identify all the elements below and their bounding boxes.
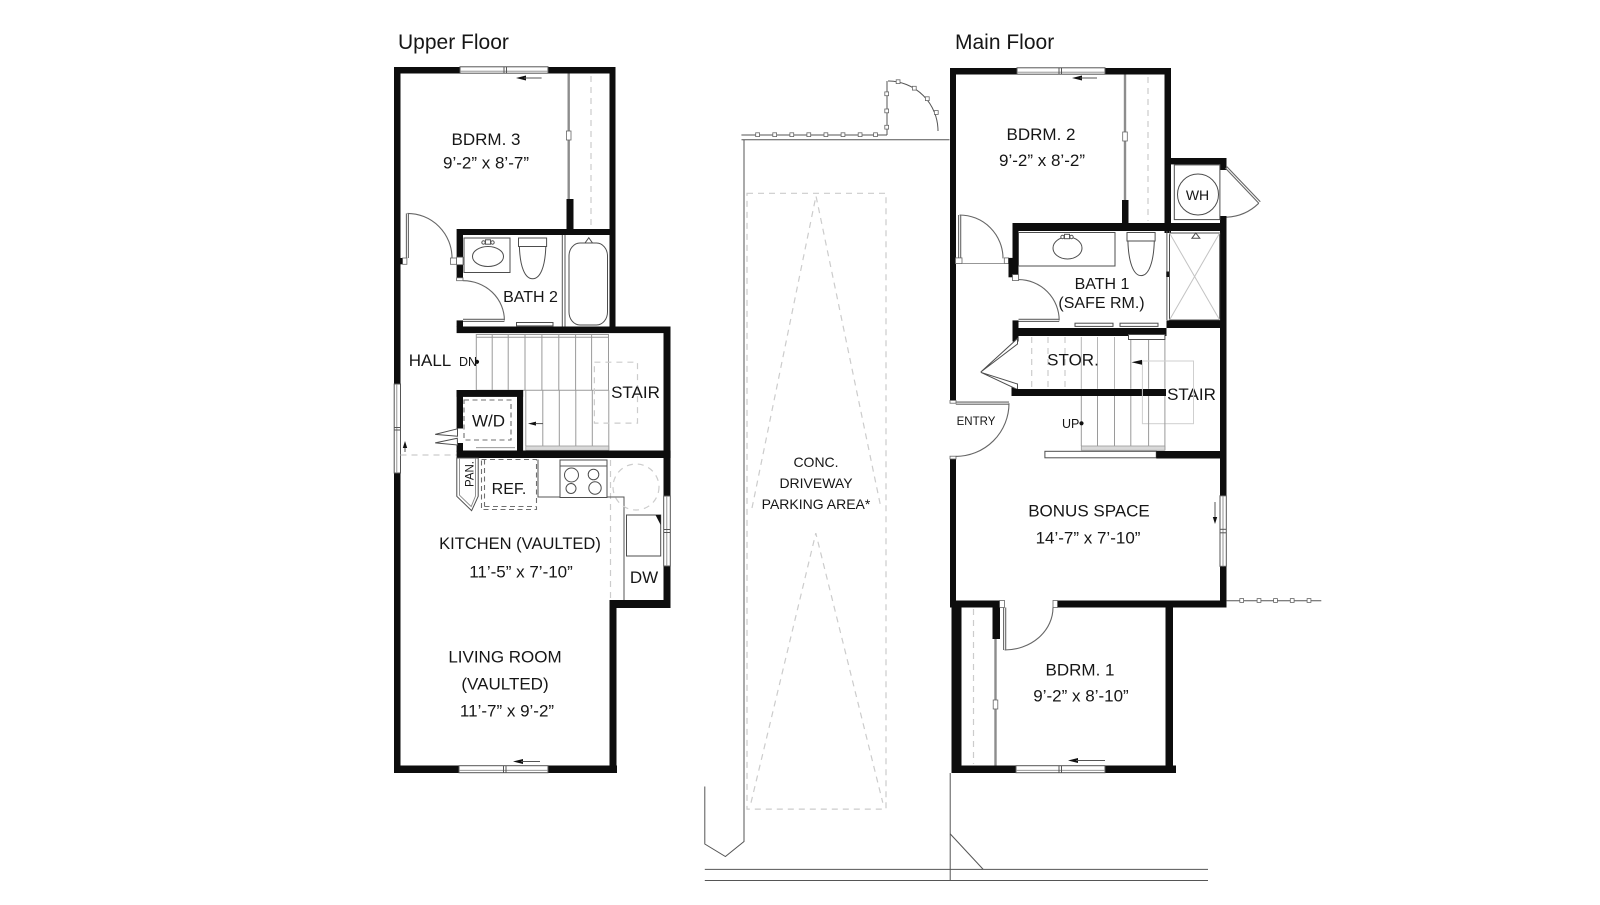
svg-text:BONUS SPACE: BONUS SPACE: [1028, 502, 1150, 521]
svg-text:CONC.: CONC.: [793, 454, 838, 470]
svg-text:DRIVEWAY: DRIVEWAY: [779, 475, 853, 491]
svg-text:BATH 1: BATH 1: [1075, 276, 1130, 293]
svg-text:LIVING ROOM: LIVING ROOM: [448, 648, 561, 667]
svg-text:PARKING AREA*: PARKING AREA*: [762, 496, 871, 512]
svg-text:(SAFE RM.): (SAFE RM.): [1058, 295, 1144, 312]
svg-text:11’-7” x 9’-2”: 11’-7” x 9’-2”: [460, 702, 554, 721]
svg-text:11’-5” x 7’-10”: 11’-5” x 7’-10”: [469, 563, 573, 582]
svg-text:(VAULTED): (VAULTED): [461, 675, 548, 694]
svg-text:9’-2” x 8’-2”: 9’-2” x 8’-2”: [999, 151, 1085, 170]
svg-text:9’-2” x 8’-7”: 9’-2” x 8’-7”: [443, 154, 529, 173]
svg-text:W/D: W/D: [472, 412, 505, 431]
svg-text:BDRM. 3: BDRM. 3: [452, 130, 521, 149]
svg-text:BATH 2: BATH 2: [503, 289, 558, 306]
svg-text:STOR.: STOR.: [1047, 351, 1099, 370]
svg-text:UP: UP: [1062, 417, 1079, 431]
svg-text:BDRM. 1: BDRM. 1: [1046, 661, 1115, 680]
svg-text:HALL: HALL: [409, 351, 452, 370]
svg-text:STAIR: STAIR: [1167, 385, 1216, 404]
svg-text:BDRM. 2: BDRM. 2: [1007, 125, 1076, 144]
svg-text:DW: DW: [630, 568, 658, 587]
svg-text:WH: WH: [1186, 187, 1209, 203]
svg-text:ENTRY: ENTRY: [957, 416, 996, 428]
svg-text:REF.: REF.: [492, 481, 527, 498]
svg-text:14’-7” x 7’-10”: 14’-7” x 7’-10”: [1036, 529, 1141, 548]
svg-text:KITCHEN (VAULTED): KITCHEN (VAULTED): [439, 535, 601, 553]
svg-text:9’-2” x 8’-10”: 9’-2” x 8’-10”: [1033, 687, 1129, 706]
svg-text:STAIR: STAIR: [611, 383, 660, 402]
svg-text:Main Floor: Main Floor: [955, 31, 1054, 54]
svg-text:Upper Floor: Upper Floor: [398, 31, 509, 54]
svg-text:DN: DN: [459, 355, 477, 369]
svg-text:PAN.: PAN.: [465, 461, 477, 487]
